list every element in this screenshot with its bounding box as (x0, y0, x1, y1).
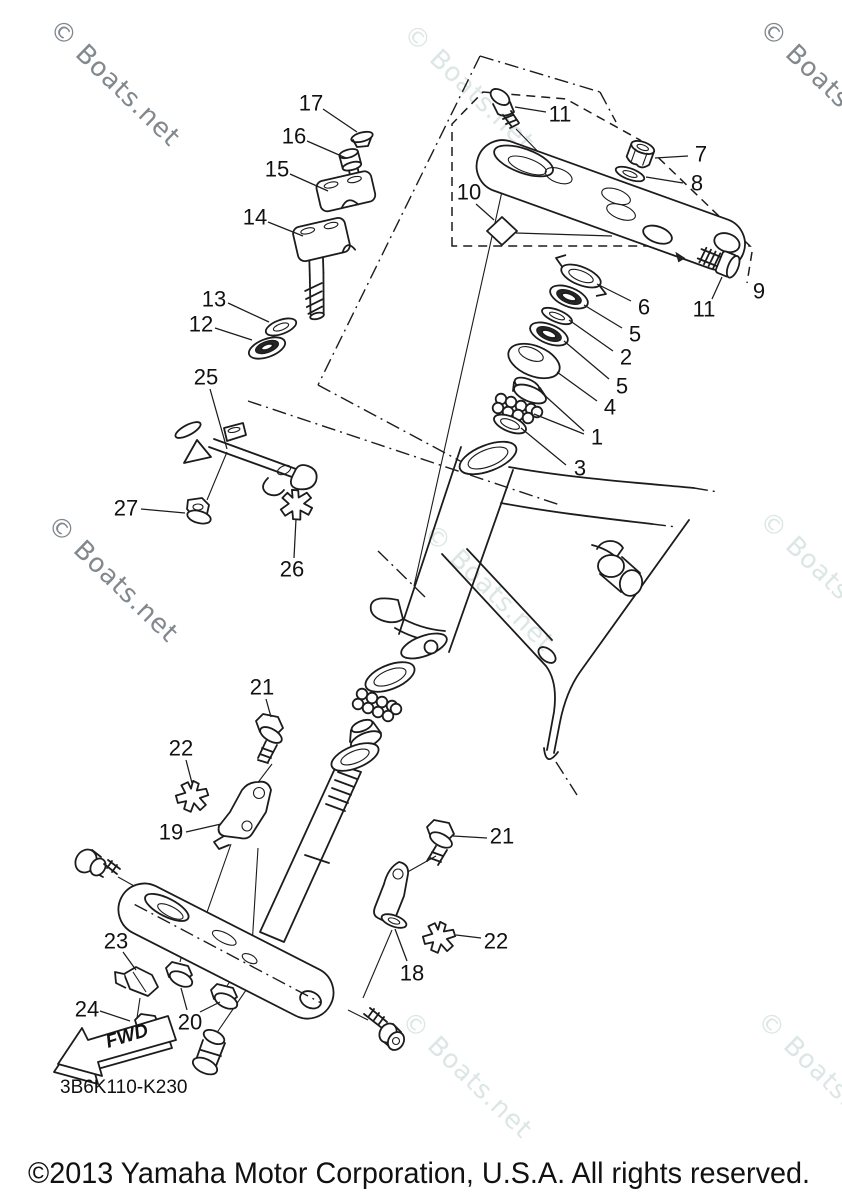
part-steering-stem (260, 764, 361, 942)
part-upper-holder-15 (315, 170, 377, 213)
part-nut-20-a (166, 962, 195, 990)
fwd-arrow: FWD (54, 1016, 176, 1084)
part-number-16: 16 (282, 124, 306, 149)
part-number-2: 2 (620, 345, 632, 370)
parts-diagram-page: © Boats.net© Boats.net© Boats.net© Boats… (0, 0, 842, 1200)
leader-line-26 (294, 519, 296, 558)
part-number-18: 18 (400, 961, 424, 986)
bearing-balls-lower (353, 689, 402, 722)
part-number-5: 5 (616, 374, 628, 399)
part-bracket-18 (374, 862, 408, 931)
part-number-22: 22 (169, 736, 193, 761)
watermark-text: © Boats.net (41, 509, 184, 648)
part-number-24: 24 (75, 997, 99, 1022)
diagram-code: 3B6K110-K230 (60, 1077, 187, 1098)
part-screw-17 (350, 130, 374, 147)
part-number-14: 14 (243, 205, 267, 230)
watermark-text: © Boats.net (43, 13, 186, 152)
part-number-8: 8 (691, 171, 703, 196)
leader-line-24 (100, 1011, 130, 1021)
part-number-22: 22 (484, 929, 508, 954)
frame-outline (371, 435, 718, 795)
leader-line-13 (228, 303, 269, 322)
part-number-27: 27 (114, 496, 138, 521)
watermark-text: © Boats.net (753, 505, 842, 644)
leader-line-2 (569, 320, 613, 351)
leader-line-20 (181, 988, 187, 1010)
leader-line-19 (186, 824, 221, 832)
leader-line-8 (646, 177, 683, 183)
part-handle-crown (468, 133, 752, 281)
part-wire-lead-bracket-25 (173, 419, 316, 495)
leader-line-27 (141, 509, 185, 513)
part-bearing-12 (246, 333, 288, 363)
part-number-1: 1 (591, 425, 603, 450)
part-nut-7 (625, 138, 656, 170)
part-handle-holder-14 (289, 216, 369, 321)
part-bracket-19 (214, 782, 271, 849)
watermark-text: © Boats.net (751, 1005, 842, 1144)
part-clip-22-left (174, 779, 210, 814)
part-number-21: 21 (250, 675, 274, 700)
leader-line-10 (476, 204, 494, 220)
leader-line-18 (395, 929, 407, 961)
part-number-6: 6 (638, 295, 650, 320)
part-bolt-21-left (256, 714, 284, 763)
part-number-15: 15 (265, 157, 289, 182)
part-number-11: 11 (693, 297, 716, 322)
part-number-5: 5 (629, 322, 641, 347)
part-cable-holder-23 (115, 967, 158, 996)
watermark-text: © Boats.net (397, 18, 540, 157)
part-number-23: 23 (104, 929, 128, 954)
leader-line-21 (453, 836, 487, 838)
watermark-text: © Boats.net (395, 1005, 538, 1144)
part-number-13: 13 (202, 287, 226, 312)
part-number-12: 12 (189, 312, 213, 337)
part-number-17: 17 (299, 91, 323, 116)
leader-line-11 (515, 107, 546, 112)
part-washer-13 (264, 315, 299, 339)
part-number-21: 21 (490, 824, 514, 849)
leader-line-5 (564, 341, 609, 379)
part-nut-20-b (211, 984, 240, 1012)
part-stem-end (190, 1027, 226, 1078)
leader-line-22 (456, 935, 481, 938)
part-number-3: 3 (574, 456, 586, 481)
part-bolt-21-right (427, 820, 454, 865)
leader-line-12 (215, 328, 252, 340)
leader-line-7 (655, 156, 688, 158)
leader-line-20 (200, 1002, 220, 1012)
part-number-11: 11 (549, 102, 572, 127)
part-number-25: 25 (194, 365, 218, 390)
part-clip-22-right (421, 920, 457, 955)
part-number-19: 19 (159, 820, 183, 845)
part-pinch-bolt-left (71, 846, 120, 879)
leader-line-3 (521, 428, 566, 465)
part-number-4: 4 (604, 395, 616, 420)
watermark-layer: © Boats.net© Boats.net© Boats.net© Boats… (41, 13, 842, 1144)
leader-line-5 (584, 305, 622, 328)
leader-line-22 (186, 760, 192, 783)
part-number-10: 10 (457, 180, 481, 205)
part-lower-race (361, 656, 418, 698)
part-number-26: 26 (280, 557, 304, 582)
part-nut-27 (186, 498, 212, 526)
steering-parts-diagram: © Boats.net© Boats.net© Boats.net© Boats… (0, 0, 842, 1200)
leader-line-23 (123, 952, 136, 970)
part-number-7: 7 (695, 142, 707, 167)
part-number-9: 9 (753, 279, 765, 304)
leader-line-17 (323, 109, 357, 132)
leader-line-16 (307, 141, 346, 158)
copyright-line: ©2013 Yamaha Motor Corporation, U.S.A. A… (28, 1157, 810, 1190)
part-number-20: 20 (178, 1010, 202, 1035)
watermark-text: © Boats.net (753, 13, 842, 152)
leader-line-4 (557, 372, 597, 401)
